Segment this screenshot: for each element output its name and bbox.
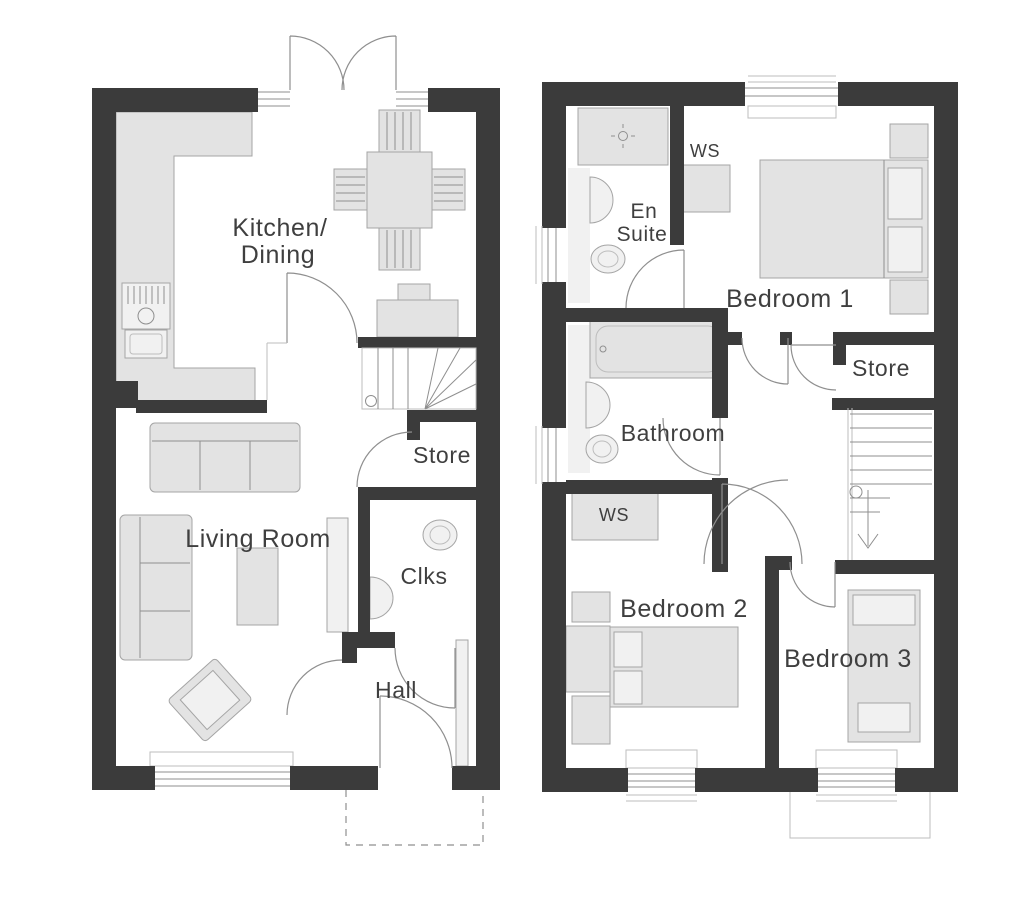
side-unit <box>377 284 458 337</box>
ground-floor-stairs <box>362 348 476 409</box>
ensuite-door <box>626 250 684 308</box>
hall-side-panel <box>456 640 468 766</box>
stairs-treads <box>850 414 932 484</box>
stairs-winders <box>850 498 890 512</box>
label-store: Store <box>413 442 471 468</box>
window-board <box>816 750 897 768</box>
pillow <box>614 671 642 704</box>
wall-bottom <box>452 766 500 790</box>
cloakroom-basin <box>370 577 393 619</box>
bedroom3-door <box>790 562 835 607</box>
window-sidelight-left <box>258 92 290 106</box>
label-bedroom-2: Bedroom 2 <box>620 595 748 623</box>
wall-store-bottom <box>832 398 934 410</box>
window-bedroom2 <box>628 774 695 787</box>
sofa-body <box>150 423 300 492</box>
wall-right <box>934 82 958 792</box>
label-wardrobe-top: WS <box>690 141 720 161</box>
coffee-table <box>237 548 278 625</box>
floorplan-drawing: Kitchen/ Dining Store Living Room Clks H… <box>0 0 1024 906</box>
window-living-room <box>155 772 290 786</box>
wall-store-top <box>833 332 934 345</box>
wall-landing-stub <box>780 332 792 345</box>
wall-store-stub <box>407 410 420 440</box>
wall-bottom <box>290 766 378 790</box>
french-door-right <box>342 36 396 90</box>
stairs-treads <box>378 348 408 409</box>
armchair <box>167 658 252 742</box>
label-store: Store <box>852 355 910 381</box>
wall-bottom <box>695 768 818 792</box>
label-bedroom-1: Bedroom 1 <box>726 285 854 313</box>
ensuite-toilet <box>591 245 625 273</box>
label-living-room: Living Room <box>185 525 331 553</box>
dining-chair <box>432 169 465 210</box>
wall-bottom <box>92 766 155 790</box>
wall-store-clks <box>358 487 476 500</box>
ensuite-counter-band <box>568 168 590 303</box>
bedroom2-door <box>722 484 802 564</box>
wall-bottom <box>542 768 628 792</box>
window-board <box>626 750 697 768</box>
sofa-body <box>120 515 192 660</box>
wall-left <box>542 282 566 428</box>
window-sill-bathroom <box>536 426 542 484</box>
bath <box>590 320 726 378</box>
store-door <box>791 345 836 390</box>
label-bathroom: Bathroom <box>621 420 726 446</box>
window-sill-top <box>748 76 836 82</box>
kitchen-door <box>287 273 357 343</box>
wall-right <box>476 88 500 790</box>
ground-floor-plan: Kitchen/ Dining Store Living Room Clks H… <box>92 36 500 845</box>
pillow <box>888 227 922 272</box>
store-door <box>357 432 412 487</box>
label-hall: Hall <box>375 677 417 703</box>
wall-stairs-top <box>358 337 476 348</box>
dining-table <box>367 152 432 228</box>
living-room-door <box>287 660 342 715</box>
porch-outline <box>346 790 483 845</box>
wall-bedroom-divider <box>765 556 779 768</box>
window-bedroom1-top <box>745 88 838 96</box>
label-cloakroom: Clks <box>400 563 447 589</box>
ensuite-basin <box>590 177 613 223</box>
sofa-large <box>150 423 300 492</box>
wall-bedroom2-top <box>566 480 716 494</box>
pillow <box>853 595 915 625</box>
wall-kitchen-living <box>136 400 267 413</box>
nightstand <box>890 280 928 314</box>
window-board <box>150 752 293 766</box>
bed-foot-unit <box>858 703 910 732</box>
bathroom-basin <box>586 382 610 428</box>
window-sidelight-right <box>396 92 428 106</box>
first-floor-stairs <box>848 408 932 560</box>
window-ensuite <box>548 228 556 282</box>
wall-left <box>92 88 116 790</box>
wall-ensuite-right <box>670 106 684 245</box>
dining-chair <box>379 110 420 152</box>
sofa-small <box>120 515 192 660</box>
window-sill-ensuite <box>536 226 542 284</box>
wall-ensuite-bottom <box>566 308 728 322</box>
wall-stairs-bottom <box>835 560 934 574</box>
wall-bedroom3-top <box>765 556 792 570</box>
side-unit-body <box>377 300 458 337</box>
wall-top-left <box>542 82 745 106</box>
label-kitchen-dining-2: Dining <box>241 241 315 269</box>
wall-clks-left <box>358 500 370 632</box>
kitchen-opening-line <box>267 343 287 400</box>
stairs-winders <box>425 348 476 409</box>
shower <box>578 108 668 165</box>
pillow <box>614 632 642 667</box>
kitchen-counter <box>116 112 255 406</box>
window-board <box>748 106 836 118</box>
wall-bathroom-right-upper <box>712 322 728 418</box>
french-door-left <box>290 36 344 90</box>
stairs-direction-arrow <box>858 490 878 548</box>
floorplan-page: Kitchen/ Dining Store Living Room Clks H… <box>0 0 1024 906</box>
label-kitchen-dining-1: Kitchen/ <box>232 214 327 242</box>
window-bathroom <box>548 428 556 482</box>
window-sill-bedroom3 <box>816 795 897 801</box>
label-bedroom-3: Bedroom 3 <box>784 645 912 673</box>
window-bedroom3 <box>818 774 895 787</box>
headboard-unit <box>566 626 610 692</box>
stairs-newel <box>366 396 377 407</box>
wardrobe-top <box>683 165 730 212</box>
nightstand <box>572 696 610 744</box>
roof-outline-below <box>790 792 930 838</box>
first-floor-plan: WS En Suite Bedroom 1 Store Bathroom WS … <box>536 76 958 838</box>
nightstand <box>890 124 928 158</box>
label-en-suite-2: Suite <box>617 223 668 246</box>
cloakroom-toilet <box>423 520 457 550</box>
bath-body <box>590 320 726 378</box>
toilet <box>423 520 457 550</box>
wall-top-left <box>92 88 258 112</box>
pillow <box>888 168 922 219</box>
wall-kitchen-stub <box>115 381 138 408</box>
shower-tray <box>578 108 668 165</box>
wall-hall-stub <box>342 632 357 663</box>
wall-bedroom1-bottom <box>728 332 742 345</box>
wall-left <box>542 482 566 792</box>
stairs-outline <box>362 348 476 409</box>
dining-table-and-chairs <box>334 110 465 270</box>
side-unit-top <box>398 284 430 300</box>
label-en-suite-1: En <box>631 200 658 223</box>
dining-chair <box>379 228 420 270</box>
label-wardrobe-mid: WS <box>599 505 629 525</box>
wall-bottom <box>895 768 958 792</box>
wall-store-left-stub <box>833 332 846 365</box>
dining-chair <box>334 169 367 210</box>
nightstand <box>572 592 610 622</box>
window-sill-bedroom2 <box>626 795 697 801</box>
kitchen-sink <box>122 283 170 358</box>
bathroom-toilet <box>586 435 618 463</box>
